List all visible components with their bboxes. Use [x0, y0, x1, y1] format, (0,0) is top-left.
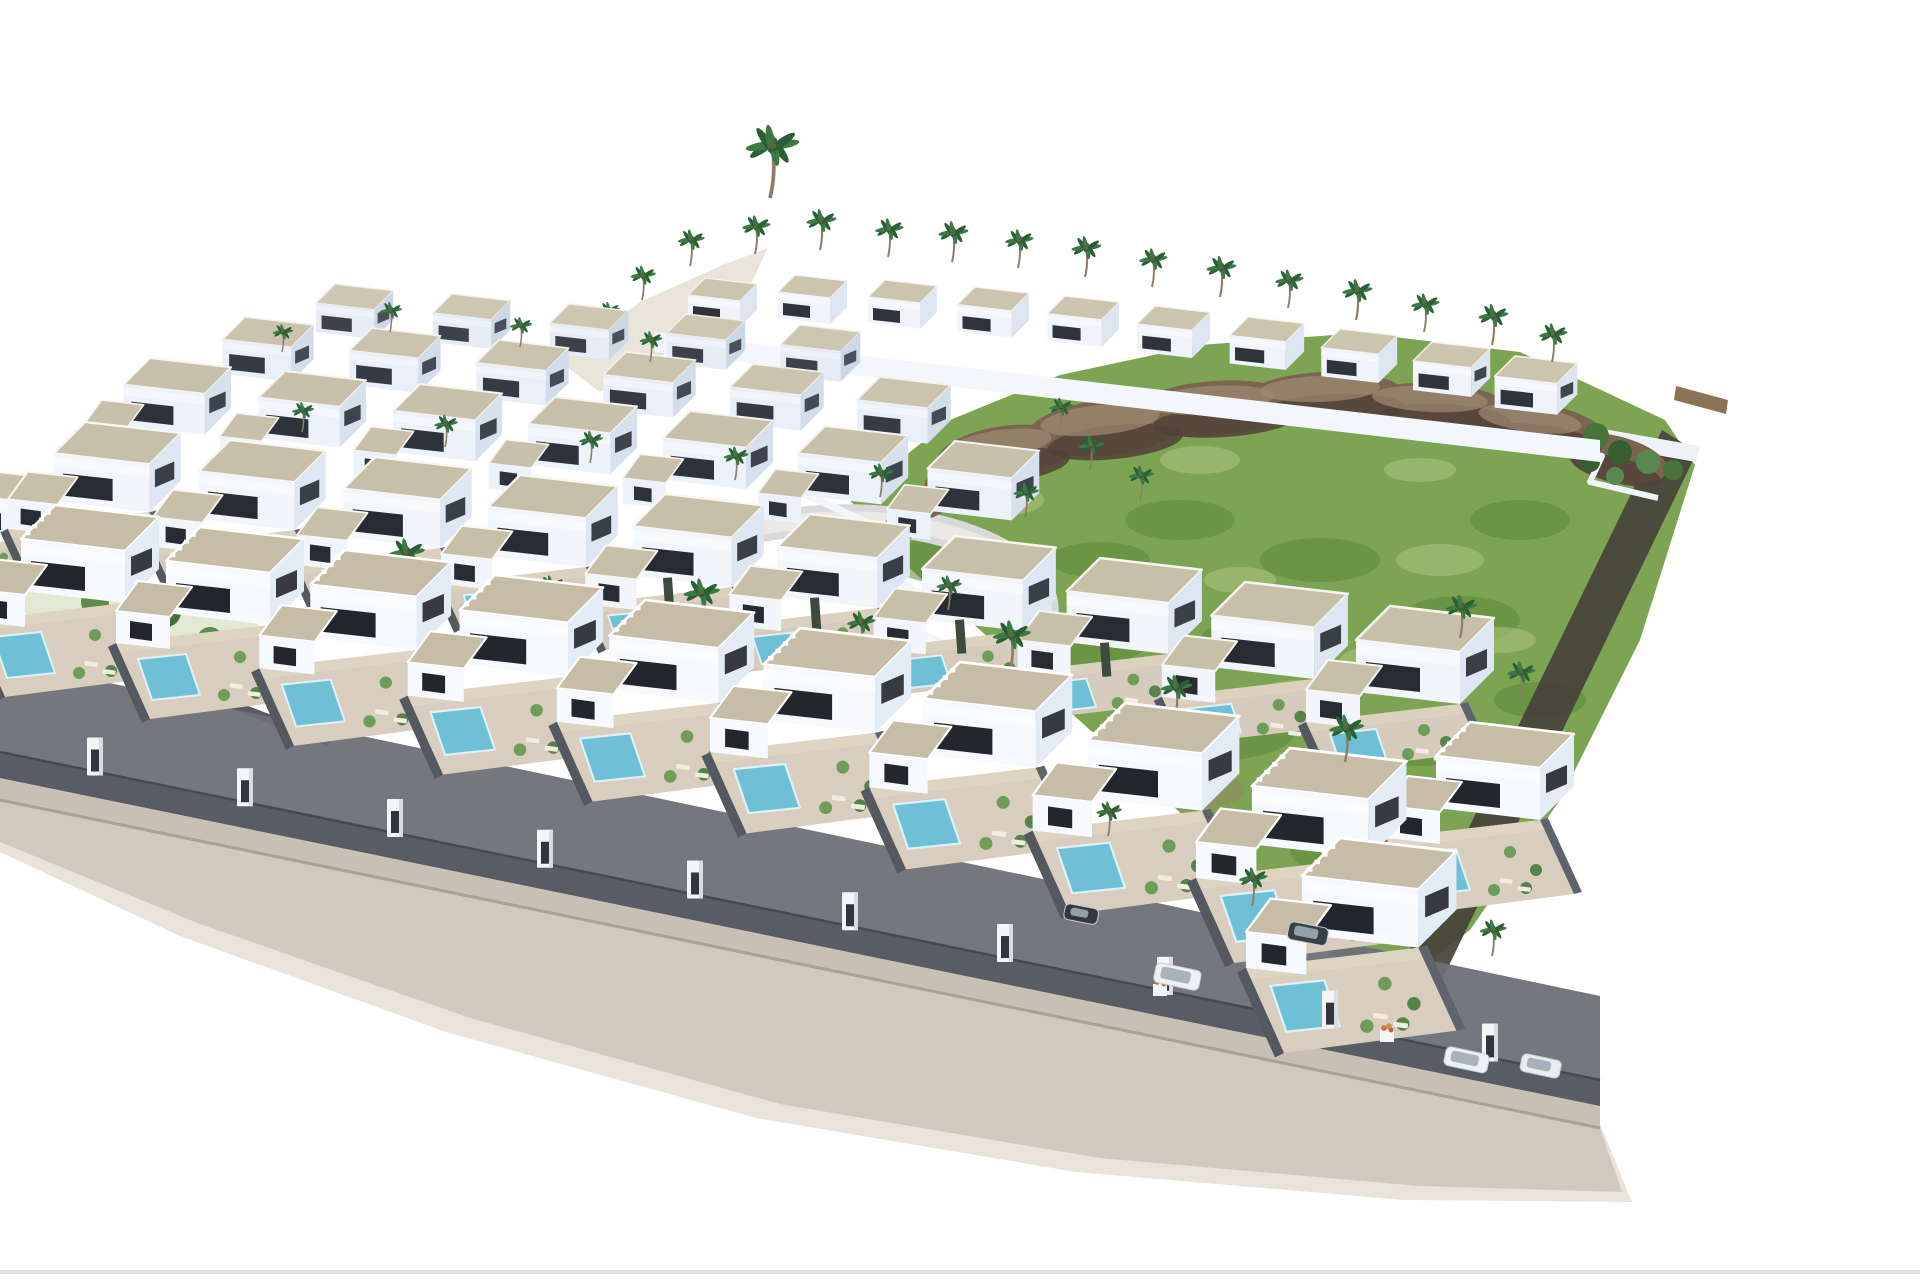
palm-tree [1480, 919, 1507, 956]
palm-tree [875, 218, 904, 257]
palm-tree [1275, 269, 1304, 308]
gate-pillar [997, 924, 1013, 962]
villa [868, 280, 937, 329]
palm-tree [1411, 293, 1440, 332]
palm-tree [1206, 256, 1237, 297]
gate-pillar [237, 768, 253, 806]
palm-tree [678, 229, 705, 266]
palm-tree [1139, 248, 1168, 287]
palm-tree [1005, 229, 1034, 268]
gate-pillar [537, 830, 553, 868]
gate-pillar [687, 860, 703, 898]
villa [1047, 296, 1119, 347]
villa [778, 275, 847, 324]
palm-tree [806, 209, 837, 250]
villa [1413, 342, 1490, 397]
villa [1495, 356, 1578, 415]
stone-pier-top-right [1674, 386, 1728, 414]
palm-tree [938, 221, 969, 262]
villa [1321, 329, 1397, 383]
palm-tree [1342, 279, 1373, 320]
villa [623, 411, 773, 509]
villa [1230, 317, 1305, 370]
palm-tree [1539, 323, 1568, 362]
palm-tree [745, 124, 800, 198]
aerial-render [0, 0, 1920, 1280]
aerial-render-canvas [0, 0, 1920, 1280]
palm-tree [630, 265, 656, 300]
gate-pillar [842, 892, 858, 930]
gate-pillar [1322, 991, 1338, 1029]
villa [1137, 306, 1210, 358]
palm-tree [742, 215, 771, 254]
bottom-rule [0, 1270, 1920, 1274]
gate-pillar [387, 799, 403, 837]
palm-tree [1071, 236, 1102, 277]
palm-tree [1478, 304, 1509, 345]
villa [957, 287, 1029, 338]
gate-pillar [87, 737, 103, 775]
